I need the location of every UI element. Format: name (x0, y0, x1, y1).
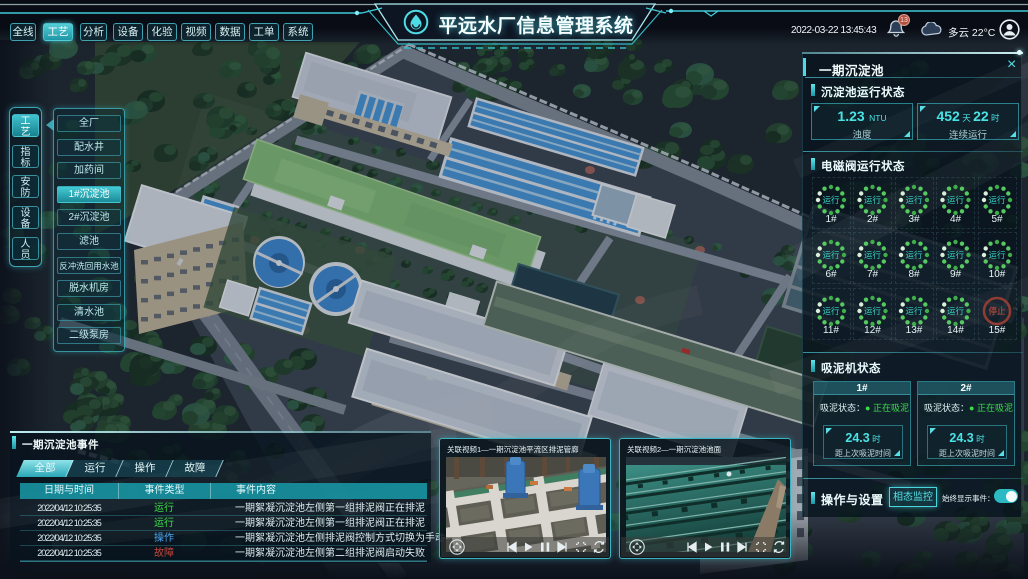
svg-text:运行: 运行 (905, 250, 923, 260)
svg-text:运行: 运行 (947, 306, 965, 316)
svg-text:停止: 停止 (988, 306, 1006, 316)
svg-text:运行: 运行 (822, 250, 840, 260)
svg-text:运行: 运行 (822, 306, 840, 316)
svg-text:运行: 运行 (864, 250, 882, 260)
svg-text:运行: 运行 (988, 195, 1006, 205)
svg-text:运行: 运行 (864, 195, 882, 205)
svg-text:运行: 运行 (905, 306, 923, 316)
svg-text:运行: 运行 (947, 195, 965, 205)
svg-text:运行: 运行 (988, 250, 1006, 260)
svg-text:运行: 运行 (822, 195, 840, 205)
svg-text:运行: 运行 (947, 250, 965, 260)
svg-text:运行: 运行 (864, 306, 882, 316)
svg-text:运行: 运行 (905, 195, 923, 205)
